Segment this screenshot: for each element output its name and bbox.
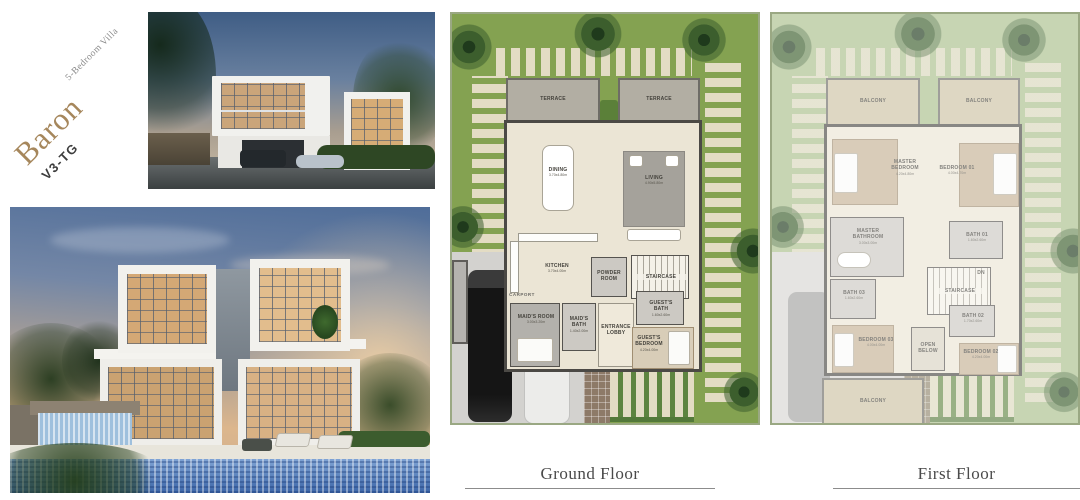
palm-tree-icon — [678, 14, 730, 66]
window-glass — [221, 83, 305, 129]
room-label-bath-03: BATH 031.60x2.60m — [837, 290, 871, 301]
master-bathroom: MASTER BATHROOM3.00x3.00m — [830, 217, 904, 277]
entry-gate-wall — [452, 260, 468, 344]
room-label-terrace: TERRACE — [506, 96, 600, 102]
villa-upper-block — [212, 76, 330, 136]
room-label-bedroom-01: BEDROOM 014.00x4.70m — [937, 165, 977, 176]
palm-tree-icon — [770, 20, 816, 74]
armchair — [665, 155, 679, 167]
armchair — [629, 155, 643, 167]
bed — [834, 333, 854, 367]
open-below: OPEN BELOW — [911, 327, 945, 371]
room-label-bath-01: BATH 011.60x2.60m — [960, 232, 994, 243]
suv-illustration — [240, 150, 286, 167]
room-label-kitchen: KITCHEN3.70x4.00m — [536, 263, 578, 274]
bedroom-02: BEDROOM 024.20x4.00m — [947, 341, 1023, 377]
room-label-dining: DINING3.70x4.80m — [540, 167, 576, 178]
outdoor-sofa — [242, 439, 272, 451]
bathtub — [837, 252, 871, 268]
room-label-balcony: BALCONY — [826, 98, 920, 104]
boundary-wall — [148, 133, 210, 165]
lounge-chair — [275, 433, 312, 447]
palm-tree-icon — [1040, 368, 1080, 416]
kitchen-counter — [510, 241, 519, 293]
window-glass — [127, 274, 207, 344]
maids-bath: MAID'S BATH1.40x2.00m — [562, 303, 596, 351]
villa-exterior-photo-top — [148, 12, 435, 189]
room-label-terrace: TERRACE — [618, 96, 700, 102]
lounge-chair — [317, 435, 354, 449]
palm-tree-icon — [998, 14, 1050, 66]
bedroom-03: BEDROOM 034.00x4.00m — [830, 321, 906, 377]
room-label-maids-bath: MAID'S BATH1.40x2.00m — [564, 316, 594, 333]
car-illustration — [296, 155, 344, 168]
window-glass — [246, 367, 352, 439]
room-label-entrance: ENTRANCE LOBBY — [600, 324, 632, 337]
guests-bath: GUEST'S BATH1.60x2.60m — [636, 291, 684, 325]
balcony-rail — [221, 110, 305, 112]
villa-exterior-photo-bottom — [10, 207, 430, 493]
room-label-bedroom-02: BEDROOM 024.20x4.00m — [961, 349, 1001, 360]
bed — [668, 331, 690, 365]
palm-tree-icon — [450, 20, 496, 74]
room-label-living: LIVING4.90x5.80m — [633, 175, 675, 186]
room-label-balcony: BALCONY — [938, 98, 1020, 104]
palm-tree-icon — [720, 368, 760, 416]
stair-direction-label: DN — [974, 270, 988, 276]
room-label-carport: CARPORT — [488, 292, 556, 298]
room-label-powder: POWDER ROOM — [593, 270, 625, 283]
bedroom-01: BEDROOM 014.00x4.70m — [935, 135, 1023, 215]
brand-name: Baron — [7, 89, 90, 172]
villa-upper-left-cube — [118, 265, 216, 353]
ground-floor-caption: Ground Floor — [465, 464, 715, 489]
kitchen: KITCHEN3.70x4.00m — [510, 233, 604, 299]
sofa — [627, 229, 681, 241]
kitchen-counter — [518, 233, 598, 242]
room-label-master-bathroom: MASTER BATHROOM3.00x3.00m — [843, 228, 893, 245]
cloud — [50, 227, 230, 253]
dining-table — [542, 145, 574, 211]
villa-upper-right-cube — [250, 259, 350, 351]
ground-floor-plan: CARPORT TERRACE TERRACE DINING3.70x4.80m… — [450, 12, 760, 425]
room-label-guests-bath: GUEST'S BATH1.60x2.60m — [643, 300, 679, 317]
maids-room: MAID'S ROOM3.00x3.20m — [510, 303, 560, 367]
brochure-page: Baron V3-TG 5-Bedroom Villa — [0, 0, 1080, 500]
bath-01: BATH 011.60x2.60m — [949, 221, 1003, 259]
bath-03: BATH 031.60x2.60m — [830, 279, 876, 319]
bath-02: BATH 021.70x2.60m — [949, 305, 995, 337]
room-label-staircase: STAIRCASE — [636, 274, 686, 280]
bed — [834, 153, 858, 193]
balcony-plant — [312, 305, 338, 339]
villa-footprint: MASTER BEDROOM4.20x4.80m BEDROOM 014.00x… — [824, 124, 1022, 376]
hedge-garden — [610, 366, 694, 422]
dining-room: DINING3.70x4.80m — [510, 133, 604, 231]
room-label-maids-room: MAID'S ROOM3.00x3.20m — [517, 314, 555, 325]
powder-room: POWDER ROOM — [591, 257, 627, 297]
room-label-bedroom-03: BEDROOM 034.00x4.00m — [856, 337, 896, 348]
room-label-balcony: BALCONY — [822, 398, 924, 404]
brand-subtitle: 5-Bedroom Villa — [64, 26, 121, 83]
room-label-guests-bedroom: GUEST'S BEDROOM4.20x4.00m — [630, 335, 668, 352]
first-floor-caption: First Floor — [833, 464, 1080, 489]
guests-bedroom: GUEST'S BEDROOM4.20x4.00m — [624, 323, 702, 373]
bed — [517, 338, 553, 362]
first-floor-plan: BALCONY BALCONY MASTER BEDROOM4.20x4.80m… — [770, 12, 1080, 425]
bed — [993, 153, 1017, 195]
room-label-master-bedroom: MASTER BEDROOM4.20x4.80m — [882, 159, 928, 176]
room-label-bath-02: BATH 021.70x2.60m — [956, 313, 990, 324]
villa-footprint: DINING3.70x4.80m LIVING4.90x5.80m KITCHE… — [504, 120, 702, 372]
master-bedroom: MASTER BEDROOM4.20x4.80m — [830, 131, 930, 213]
room-label-staircase: STAIRCASE — [934, 288, 986, 294]
living-room: LIVING4.90x5.80m — [607, 133, 701, 255]
room-label-open-below: OPEN BELOW — [914, 342, 942, 355]
